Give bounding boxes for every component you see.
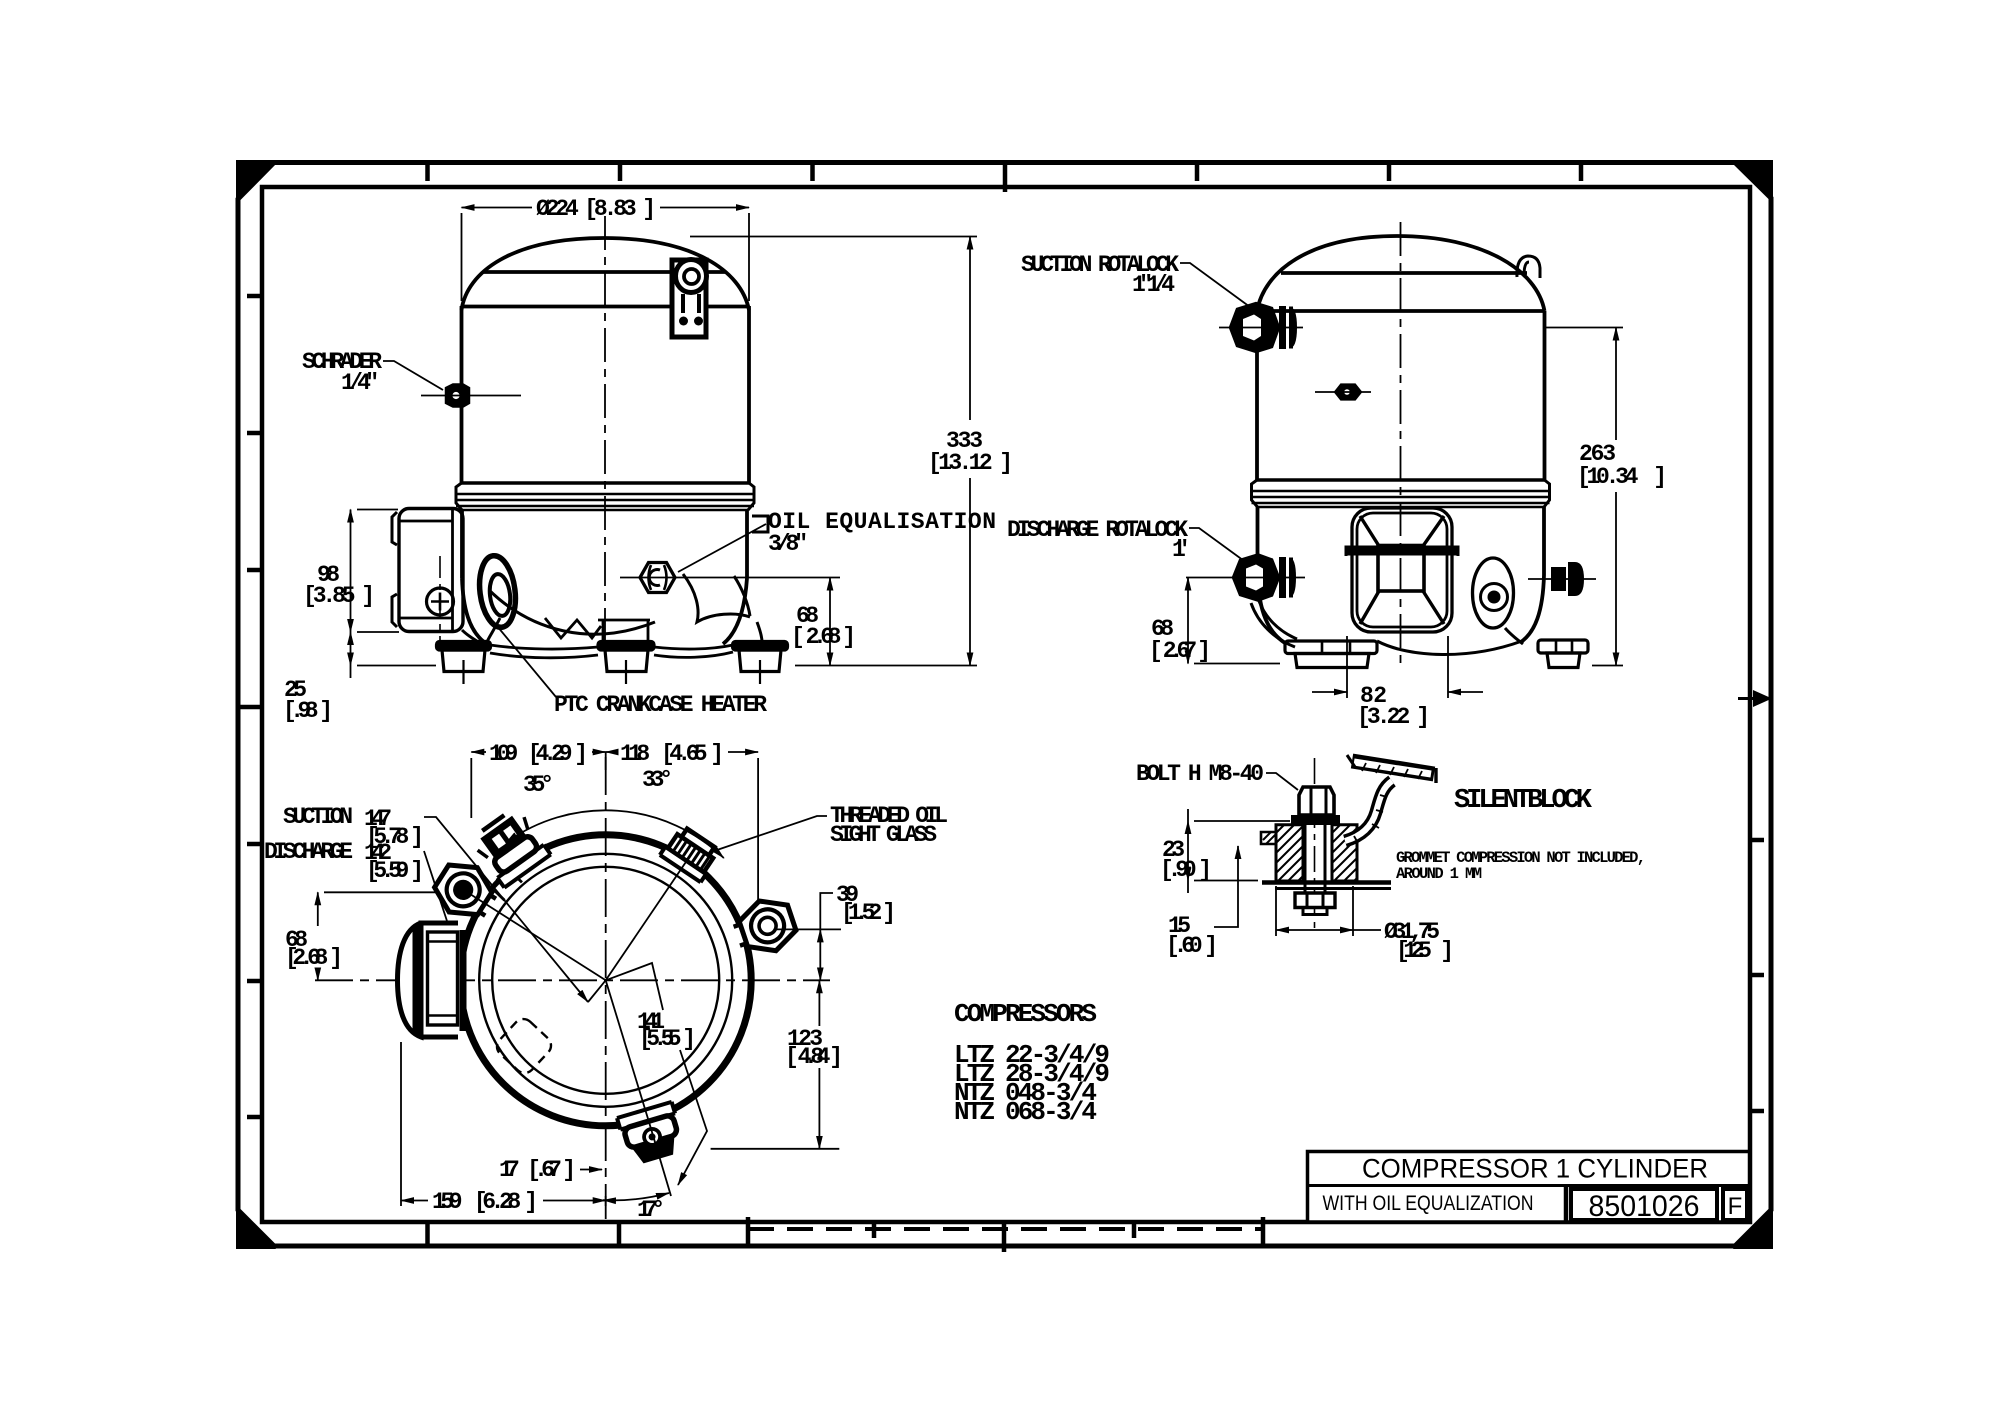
svg-text:[ 2.68 ]: [ 2.68 ] [791, 624, 856, 650]
svg-text:[5.59 ]: [5.59 ] [366, 858, 424, 884]
svg-text:AROUND 1 MM: AROUND 1 MM [1396, 865, 1482, 883]
svg-text:COMPRESSOR 1 CYLINDER: COMPRESSOR 1 CYLINDER [1362, 1154, 1708, 1184]
svg-text:8501026: 8501026 [1589, 1190, 1700, 1223]
svg-text:Ø224 [8.83 ]: Ø224 [8.83 ] [536, 196, 656, 222]
svg-text:[1.52 ]: [1.52 ] [841, 900, 896, 926]
svg-text:1"1/4: 1"1/4 [1132, 272, 1175, 298]
svg-text:DISCHARGE: DISCHARGE [264, 839, 353, 865]
svg-text:WITH OIL EQUALIZATION: WITH OIL EQUALIZATION [1323, 1191, 1534, 1215]
svg-text:17°: 17° [637, 1197, 665, 1223]
svg-text:DISCHARGE ROTALOCK: DISCHARGE ROTALOCK [1007, 517, 1188, 543]
svg-text:33°: 33° [642, 767, 673, 793]
svg-text:17 [.67 ]: 17 [.67 ] [499, 1157, 576, 1183]
svg-text:[ 2.67 ]: [ 2.67 ] [1149, 638, 1211, 664]
svg-text:[5.55 ]: [5.55 ] [639, 1026, 696, 1052]
svg-text:[10.34 ]: [10.34 ] [1577, 464, 1667, 490]
svg-text:[.90 ]: [.90 ] [1160, 857, 1212, 883]
svg-text:3/8": 3/8" [768, 531, 808, 557]
svg-text:35°: 35° [523, 772, 554, 798]
svg-text:SILENTBLOCK: SILENTBLOCK [1454, 786, 1593, 816]
svg-text:1": 1" [1172, 537, 1189, 563]
svg-text:159 [6.28 ]: 159 [6.28 ] [432, 1189, 538, 1215]
svg-text:[.60 ]: [.60 ] [1166, 933, 1218, 959]
svg-text:[ 4.84 ]: [ 4.84 ] [785, 1044, 843, 1070]
svg-text:SUCTION: SUCTION [283, 804, 353, 830]
svg-text:109 [4.29 ]: 109 [4.29 ] [489, 741, 588, 767]
svg-text:SIGHT GLASS: SIGHT GLASS [830, 822, 937, 848]
svg-text:118 [4.65 ]: 118 [4.65 ] [620, 741, 724, 767]
svg-text:[13.12 ]: [13.12 ] [928, 450, 1013, 476]
svg-text:1/4": 1/4" [341, 370, 379, 396]
svg-text:F: F [1728, 1193, 1743, 1220]
svg-text:[3.22 ]: [3.22 ] [1357, 704, 1430, 730]
svg-text:[125 ]: [125 ] [1396, 938, 1454, 964]
svg-text:PTC CRANKCASE HEATER: PTC CRANKCASE HEATER [554, 692, 767, 718]
svg-text:[3.85 ]: [3.85 ] [303, 583, 375, 609]
svg-text:[2.68 ]: [2.68 ] [285, 945, 343, 971]
svg-text:NTZ 068-3/4: NTZ 068-3/4 [954, 1097, 1097, 1127]
svg-text:BOLT H M8-40: BOLT H M8-40 [1136, 761, 1264, 787]
svg-text:[.98 ]: [.98 ] [283, 698, 333, 724]
svg-text:COMPRESSORS: COMPRESSORS [954, 999, 1097, 1029]
